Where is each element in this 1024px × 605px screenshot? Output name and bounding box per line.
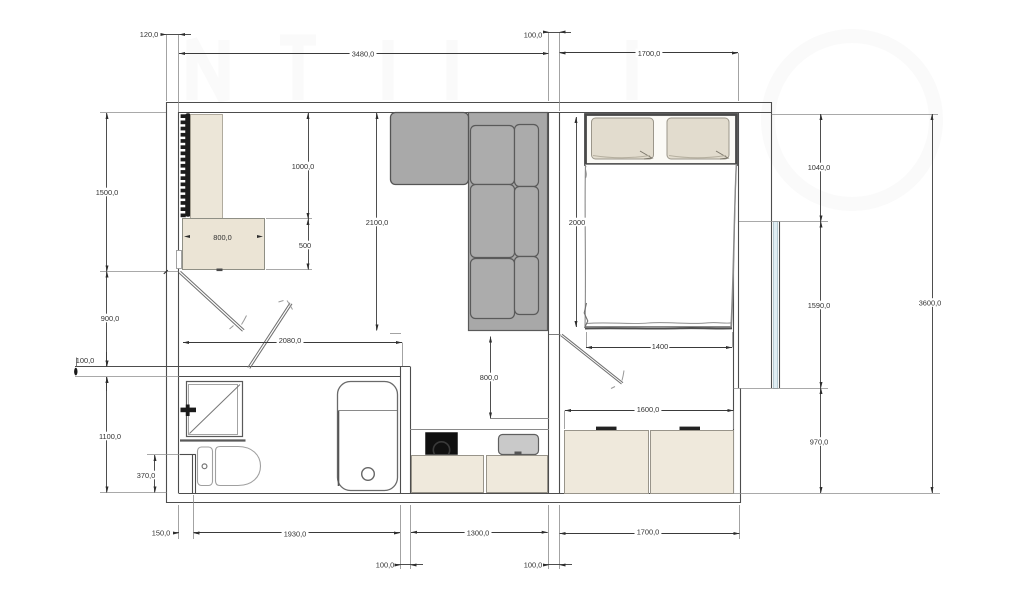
svg-text:1400: 1400 <box>652 342 668 351</box>
svg-text:100,0: 100,0 <box>524 561 543 570</box>
svg-text:1590,0: 1590,0 <box>808 301 831 310</box>
svg-text:3480,0: 3480,0 <box>352 49 375 58</box>
svg-text:100,0: 100,0 <box>376 561 395 570</box>
svg-text:150,0: 150,0 <box>152 529 171 538</box>
svg-text:1600,0: 1600,0 <box>637 405 660 414</box>
svg-text:2000: 2000 <box>569 218 585 227</box>
svg-text:800,0: 800,0 <box>480 373 499 382</box>
svg-text:1500,0: 1500,0 <box>96 188 119 197</box>
svg-text:1040,0: 1040,0 <box>808 163 831 172</box>
svg-text:3600,0: 3600,0 <box>919 298 942 307</box>
svg-text:970,0: 970,0 <box>810 437 829 446</box>
svg-text:2080,0: 2080,0 <box>279 336 302 345</box>
svg-text:1700,0: 1700,0 <box>637 527 660 536</box>
svg-text:500: 500 <box>299 241 311 250</box>
svg-text:120,0: 120,0 <box>140 30 159 39</box>
svg-text:100,0: 100,0 <box>524 30 543 39</box>
svg-text:100,0: 100,0 <box>76 356 95 365</box>
svg-text:2100,0: 2100,0 <box>366 218 389 227</box>
svg-text:800,0: 800,0 <box>213 233 232 242</box>
svg-text:1300,0: 1300,0 <box>467 528 490 537</box>
svg-text:370,0: 370,0 <box>137 471 156 480</box>
svg-text:1700,0: 1700,0 <box>638 49 661 58</box>
svg-text:1100,0: 1100,0 <box>99 432 121 441</box>
svg-text:900,0: 900,0 <box>101 314 120 323</box>
svg-text:1000,0: 1000,0 <box>292 162 315 171</box>
svg-text:1930,0: 1930,0 <box>284 529 307 538</box>
